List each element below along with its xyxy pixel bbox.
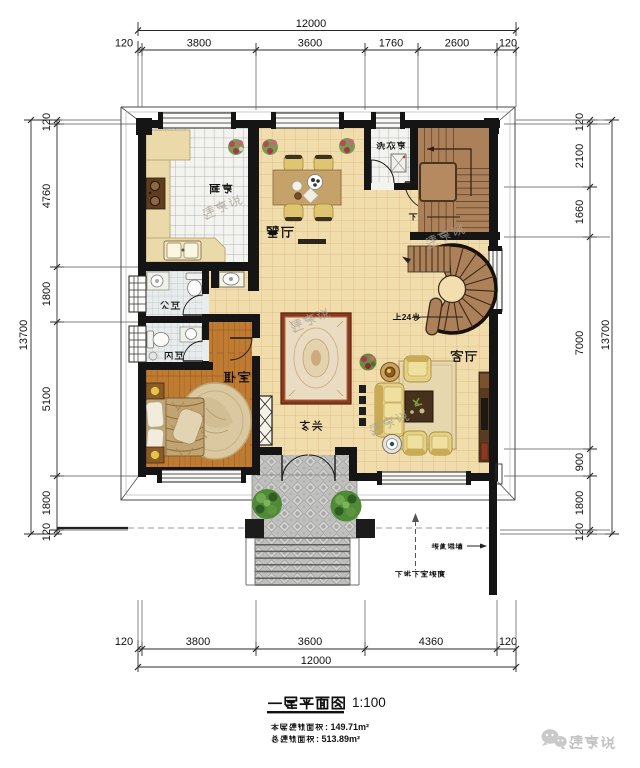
svg-text:1660: 1660 [574,200,586,224]
svg-text:3800: 3800 [186,636,210,648]
svg-text:120: 120 [499,636,517,648]
svg-text:4360: 4360 [419,636,443,648]
svg-text:3600: 3600 [298,636,322,648]
svg-text:120: 120 [41,113,53,131]
svg-text:120: 120 [41,523,53,541]
svg-text:900: 900 [574,453,586,471]
svg-text:2600: 2600 [445,38,469,50]
svg-text:12000: 12000 [296,18,327,30]
svg-text:120: 120 [574,523,586,541]
svg-text:13700: 13700 [18,320,30,351]
svg-text:120: 120 [574,113,586,131]
svg-text:: 513.89m²: : 513.89m² [316,734,360,744]
svg-text:7000: 7000 [574,331,586,355]
svg-text:120: 120 [115,38,133,50]
svg-text:120: 120 [115,636,133,648]
svg-text:: 149.71m²: : 149.71m² [325,722,369,732]
svg-text:1800: 1800 [574,491,586,515]
svg-text:5100: 5100 [41,387,53,411]
svg-text:4760: 4760 [41,184,53,208]
svg-text:3800: 3800 [187,38,211,50]
svg-text:3600: 3600 [298,38,322,50]
svg-text:1:100: 1:100 [352,695,386,710]
svg-text:1760: 1760 [379,38,403,50]
svg-text:1800: 1800 [41,282,53,306]
svg-text:13700: 13700 [600,320,612,351]
svg-text:24: 24 [402,312,412,322]
svg-text:2100: 2100 [574,144,586,168]
svg-text:1800: 1800 [41,491,53,515]
svg-text:120: 120 [499,38,517,50]
svg-text:12000: 12000 [301,655,332,667]
